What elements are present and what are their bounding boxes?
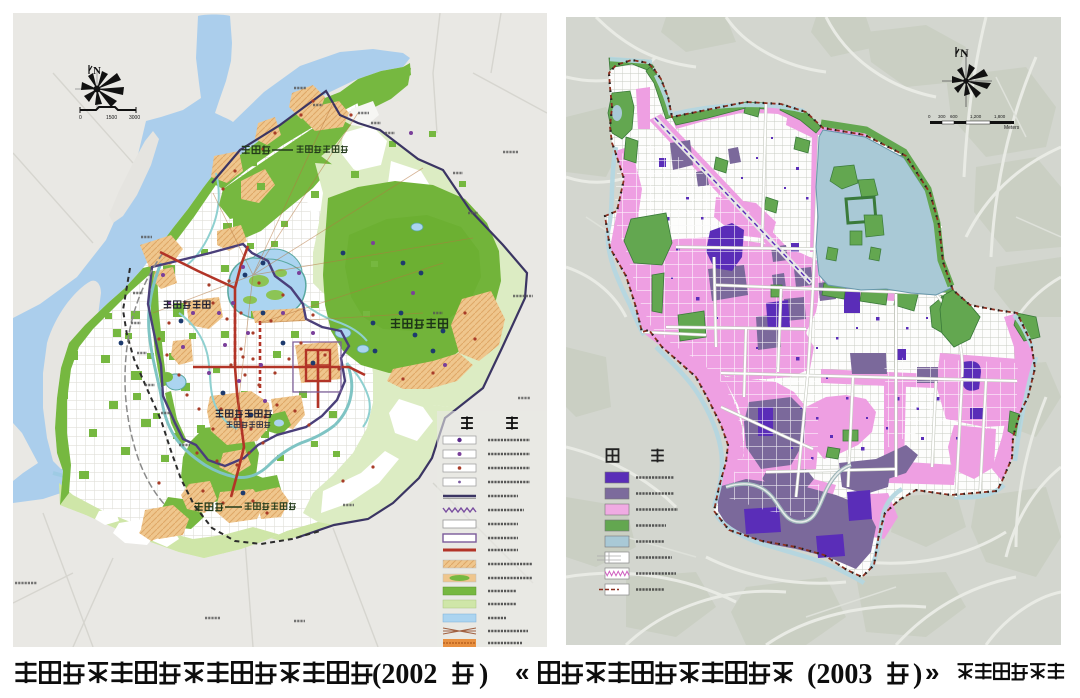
svg-text:3000: 3000	[129, 115, 140, 121]
svg-text:(2002: (2002	[372, 659, 437, 690]
svg-text:N: N	[960, 46, 969, 60]
svg-text:1,800: 1,800	[994, 114, 1006, 119]
svg-text:300: 300	[938, 114, 946, 119]
svg-text:600: 600	[950, 114, 958, 119]
svg-text:»: »	[925, 657, 939, 687]
svg-text:«: «	[515, 657, 529, 687]
svg-text:1500: 1500	[106, 115, 117, 121]
svg-text:): )	[479, 659, 488, 690]
svg-text:N: N	[93, 65, 101, 77]
svg-text:(2003: (2003	[807, 659, 872, 690]
svg-text:): )	[913, 659, 922, 690]
svg-text:1,200: 1,200	[970, 114, 982, 119]
svg-text:Meters: Meters	[1004, 125, 1020, 131]
svg-text:0: 0	[79, 115, 82, 121]
